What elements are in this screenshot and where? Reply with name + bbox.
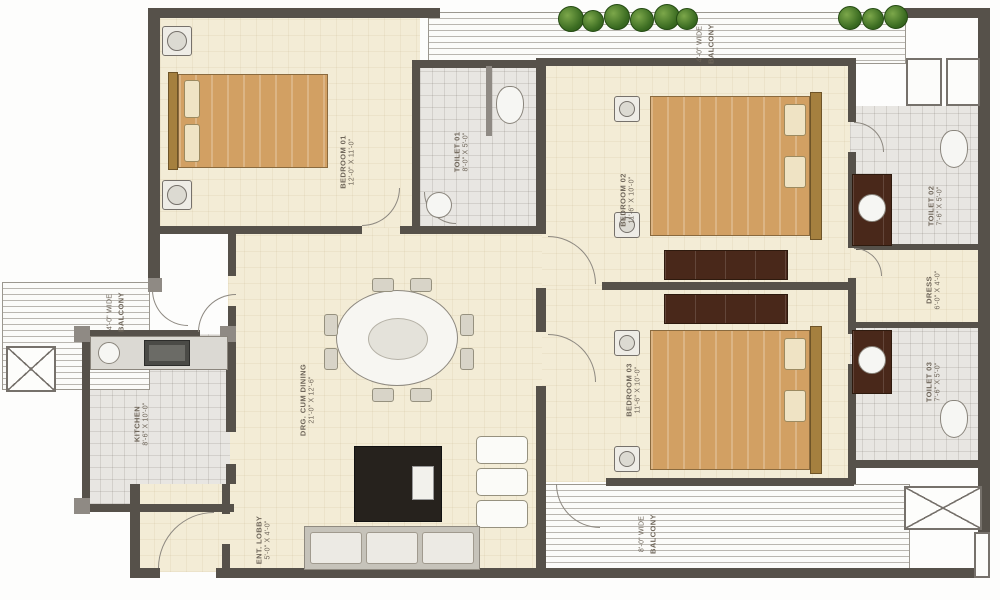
plant-icon	[582, 10, 604, 32]
label-kitchen: KITCHEN 8'-6" X 10'-0"	[132, 402, 151, 445]
pillow-icon	[784, 338, 806, 370]
plant-icon	[558, 6, 584, 32]
wall-segment	[82, 504, 234, 512]
plant-icon	[838, 6, 862, 30]
chair-icon	[324, 314, 338, 336]
washbasin-icon	[426, 192, 452, 218]
nightstand-icon	[162, 180, 192, 210]
label-balcony-left: 4'-0" WIDE BALCONY	[106, 292, 125, 332]
column-shaft	[946, 58, 980, 106]
chair-icon	[410, 278, 432, 292]
label-bedroom-3: BEDROOM 03 11'-6" X 10'-0"	[624, 363, 643, 417]
wall-segment	[148, 8, 160, 234]
wall-segment	[902, 8, 990, 18]
label-living-dining: DRG. CUM DINING 21'-0" X 12'-6"	[298, 364, 317, 436]
wall-segment	[486, 66, 492, 136]
hob-icon	[98, 342, 120, 364]
bed-headboard	[810, 326, 822, 474]
plant-icon	[862, 8, 884, 30]
label-toilet-1: TOILET 01 8'-0" X 5'-0"	[452, 132, 471, 173]
wall-segment	[222, 544, 230, 578]
wall-segment	[130, 484, 140, 578]
pillow-icon	[784, 390, 806, 422]
plant-icon	[604, 4, 630, 30]
wardrobe-icon	[664, 250, 788, 280]
chair-icon	[460, 314, 474, 336]
washbasin-icon	[858, 346, 886, 374]
wall-segment	[602, 282, 854, 290]
wall-segment	[856, 322, 982, 328]
label-balcony-bottom: 8'-0" WIDE BALCONY	[638, 514, 657, 554]
label-bedroom-2: BEDROOM 02 11'-6" X 10'-0"	[618, 173, 637, 227]
pillow-icon	[184, 124, 200, 162]
wall-segment	[148, 234, 160, 282]
pillow-icon	[184, 80, 200, 118]
duct-shaft-icon	[6, 346, 56, 392]
wall-segment	[536, 288, 546, 332]
label-bedroom-1: BEDROOM 01 12'-0" X 11'-0"	[338, 135, 357, 189]
plant-icon	[884, 5, 908, 29]
wall-segment	[536, 484, 546, 572]
nightstand-icon	[614, 96, 640, 122]
chair-icon	[372, 278, 394, 292]
label-entry-lobby: ENT. LOBBY 5'-0" X 4'-0"	[254, 516, 273, 565]
sofa-seat-icon	[476, 500, 528, 528]
wall-segment	[536, 386, 546, 484]
chair-icon	[372, 388, 394, 402]
wardrobe-icon	[664, 294, 788, 324]
label-toilet-2: TOILET 02 7'-6" X 5'-0"	[926, 186, 945, 227]
plant-icon	[676, 8, 698, 30]
bed-headboard	[168, 72, 178, 170]
dining-table-center	[368, 318, 428, 360]
sofa-cushion	[310, 532, 362, 564]
chair-icon	[324, 348, 338, 370]
wall-segment	[148, 226, 362, 234]
tv-screen-icon	[412, 466, 434, 500]
floor-plan: BEDROOM 01 12'-0" X 11'-0" TOILET 01 8'-…	[0, 0, 1000, 600]
wall-column	[74, 498, 90, 514]
wall-segment	[536, 58, 546, 234]
column-shaft	[906, 58, 942, 106]
wall-segment	[412, 66, 420, 228]
sofa-cushion	[366, 532, 418, 564]
toilet-wc-icon	[496, 86, 524, 124]
nightstand-icon	[614, 330, 640, 356]
chair-icon	[410, 388, 432, 402]
wall-segment	[856, 460, 982, 468]
label-toilet-3: TOILET 03 7'-6" X 5'-0"	[924, 362, 943, 403]
wall-segment	[82, 330, 90, 512]
sofa-cushion	[422, 532, 474, 564]
door-arc-kitchen	[198, 294, 236, 332]
door-arc-balcony-left	[152, 290, 188, 326]
nightstand-icon	[614, 446, 640, 472]
kitchen-sink-icon	[144, 340, 190, 366]
wall-segment	[226, 464, 236, 484]
wall-segment	[848, 58, 856, 122]
plant-icon	[630, 8, 654, 32]
label-balcony-top: 4'-0" WIDE BALCONY	[696, 24, 715, 64]
wall-segment	[412, 60, 538, 68]
wall-segment	[400, 226, 540, 234]
sofa-seat-icon	[476, 436, 528, 464]
washbasin-icon	[858, 194, 886, 222]
toilet-wc-icon	[940, 130, 968, 168]
wall-column	[74, 326, 90, 342]
bed-headboard	[810, 92, 822, 240]
pillow-icon	[784, 104, 806, 136]
bed-icon	[178, 74, 328, 168]
pillow-icon	[784, 156, 806, 188]
sofa-seat-icon	[476, 468, 528, 496]
nightstand-icon	[162, 26, 192, 56]
wall-segment	[228, 232, 236, 276]
toilet-wc-icon	[940, 400, 968, 438]
column-shaft	[974, 532, 990, 578]
label-dress: DRESS 6'-0" X 4'-0"	[924, 270, 943, 309]
duct-shaft-icon	[904, 486, 982, 530]
wall-segment	[148, 8, 440, 18]
chair-icon	[460, 348, 474, 370]
wall-segment	[606, 478, 854, 486]
wall-segment	[848, 278, 856, 334]
